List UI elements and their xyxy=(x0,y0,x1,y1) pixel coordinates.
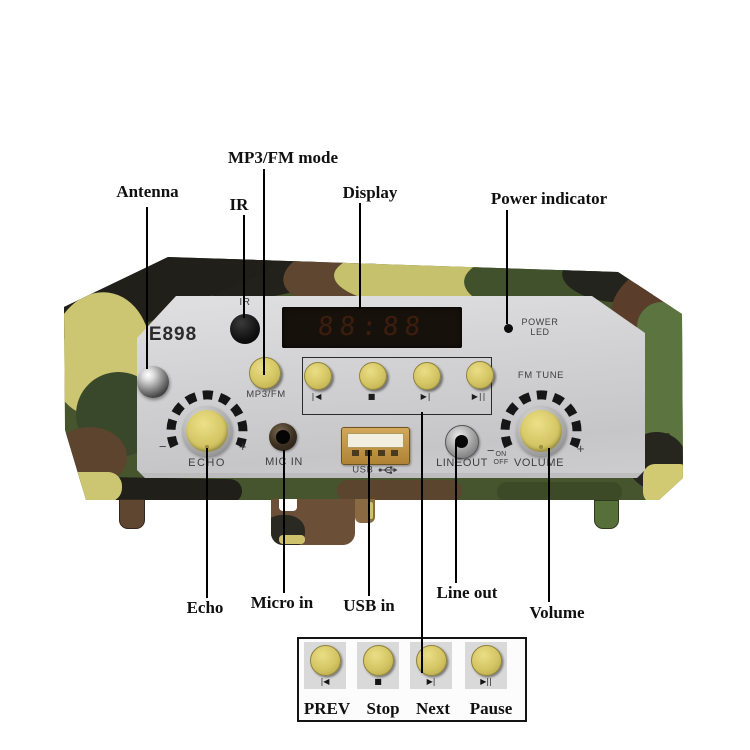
legend-pause-button xyxy=(471,645,502,676)
echo-knob-cap xyxy=(186,410,228,452)
label-power-indicator: Power indicator xyxy=(489,190,609,209)
callout-line-micro-in xyxy=(283,450,285,593)
display-ghost-digits: 88:88 xyxy=(282,312,462,342)
usb-print-label-row: USB xyxy=(343,461,407,479)
usb-contact xyxy=(391,450,398,456)
legend-cell-prev: |◀ xyxy=(304,642,346,689)
bracket-notch xyxy=(279,499,297,511)
usb-tongue xyxy=(347,433,404,448)
usb-trident-icon xyxy=(378,465,398,475)
power-led-print: POWER LED xyxy=(518,317,562,337)
device-bracket-tab xyxy=(355,499,375,523)
camo-patch xyxy=(60,472,122,502)
callout-line-antenna xyxy=(146,207,148,369)
prev-button xyxy=(304,362,332,390)
ir-print-label: IR xyxy=(230,297,260,308)
fm-minus: − xyxy=(483,443,499,458)
legend-pause-symbol: ▶|| xyxy=(465,677,507,686)
device-foot-left xyxy=(119,499,145,529)
label-antenna: Antenna xyxy=(100,183,195,202)
usb-print-label: USB xyxy=(352,464,373,475)
legend-next-symbol: ▶| xyxy=(410,677,452,686)
echo-plus: + xyxy=(235,439,251,454)
echo-minus: − xyxy=(155,439,171,454)
callout-line-volume xyxy=(548,448,550,602)
led-display: 88:88 xyxy=(282,307,462,348)
device-foot-right xyxy=(594,500,619,529)
label-micro-in: Micro in xyxy=(232,594,332,613)
mic-in-hole xyxy=(276,430,290,444)
prev-symbol: |◀ xyxy=(302,392,332,401)
label-display: Display xyxy=(330,184,410,203)
legend-cell-stop: ■ xyxy=(357,642,399,689)
label-volume: Volume xyxy=(517,604,597,623)
callout-line-line-out xyxy=(455,443,457,583)
stop-button xyxy=(359,362,387,390)
legend-cell-next: ▶| xyxy=(410,642,452,689)
legend-label-prev: PREV xyxy=(301,699,353,719)
legend-label-pause: Pause xyxy=(462,699,520,719)
power-led-dot xyxy=(504,324,513,333)
power-led-line2: LED xyxy=(518,327,562,337)
callout-line-transport-legend xyxy=(421,412,423,673)
pause-symbol: ▶|| xyxy=(464,392,494,401)
callout-line-ir xyxy=(243,215,245,318)
legend-prev-button xyxy=(310,645,341,676)
callout-line-mp3fm xyxy=(263,169,265,375)
volume-knob-notch xyxy=(539,445,543,449)
label-line-out: Line out xyxy=(417,584,517,603)
lineout-hole xyxy=(455,435,468,448)
fm-plus: + xyxy=(573,441,589,456)
mic-in-jack xyxy=(269,423,297,451)
camo-patch xyxy=(369,502,373,519)
stop-symbol: ■ xyxy=(357,392,387,401)
label-ir: IR xyxy=(219,196,259,215)
callout-line-usb-in xyxy=(368,450,370,596)
model-number: E898 xyxy=(142,324,204,346)
lineout-jack xyxy=(445,425,479,459)
next-button xyxy=(413,362,441,390)
fm-tune-print-label: FM TUNE xyxy=(507,370,575,381)
usb-contact xyxy=(378,450,385,456)
callout-line-display xyxy=(359,203,361,309)
label-mp3fm-mode: MP3/FM mode xyxy=(213,149,353,168)
volume-knob xyxy=(516,406,566,456)
camo-patch xyxy=(497,482,622,502)
legend-stop-button xyxy=(363,645,394,676)
legend-prev-symbol: |◀ xyxy=(304,677,346,686)
mp3fm-mode-button xyxy=(249,357,281,389)
label-usb-in: USB in xyxy=(329,597,409,616)
legend-stop-symbol: ■ xyxy=(357,677,399,686)
usb-contact xyxy=(352,450,359,456)
camo-patch xyxy=(643,464,691,504)
power-led-line1: POWER xyxy=(518,317,562,327)
pause-button xyxy=(466,361,494,389)
usb-port xyxy=(341,427,410,465)
legend-label-next: Next xyxy=(407,699,459,719)
legend-label-stop: Stop xyxy=(357,699,409,719)
callout-line-power xyxy=(506,210,508,324)
legend-cell-pause: ▶|| xyxy=(465,642,507,689)
front-panel: E898 IR 88:88 POWER LED MP3/FM |◀ ■ ▶| ▶… xyxy=(137,296,645,478)
volume-knob-cap xyxy=(520,410,562,452)
callout-line-echo xyxy=(206,448,208,598)
ir-receiver xyxy=(230,314,260,344)
product-annotation-figure: MP3/FM mode Antenna IR Display Power ind… xyxy=(0,0,750,750)
transport-legend-box: |◀ ■ ▶| ▶|| PREV Stop Next Pause xyxy=(297,637,527,722)
transport-group-box xyxy=(302,357,492,415)
next-symbol: ▶| xyxy=(411,392,441,401)
